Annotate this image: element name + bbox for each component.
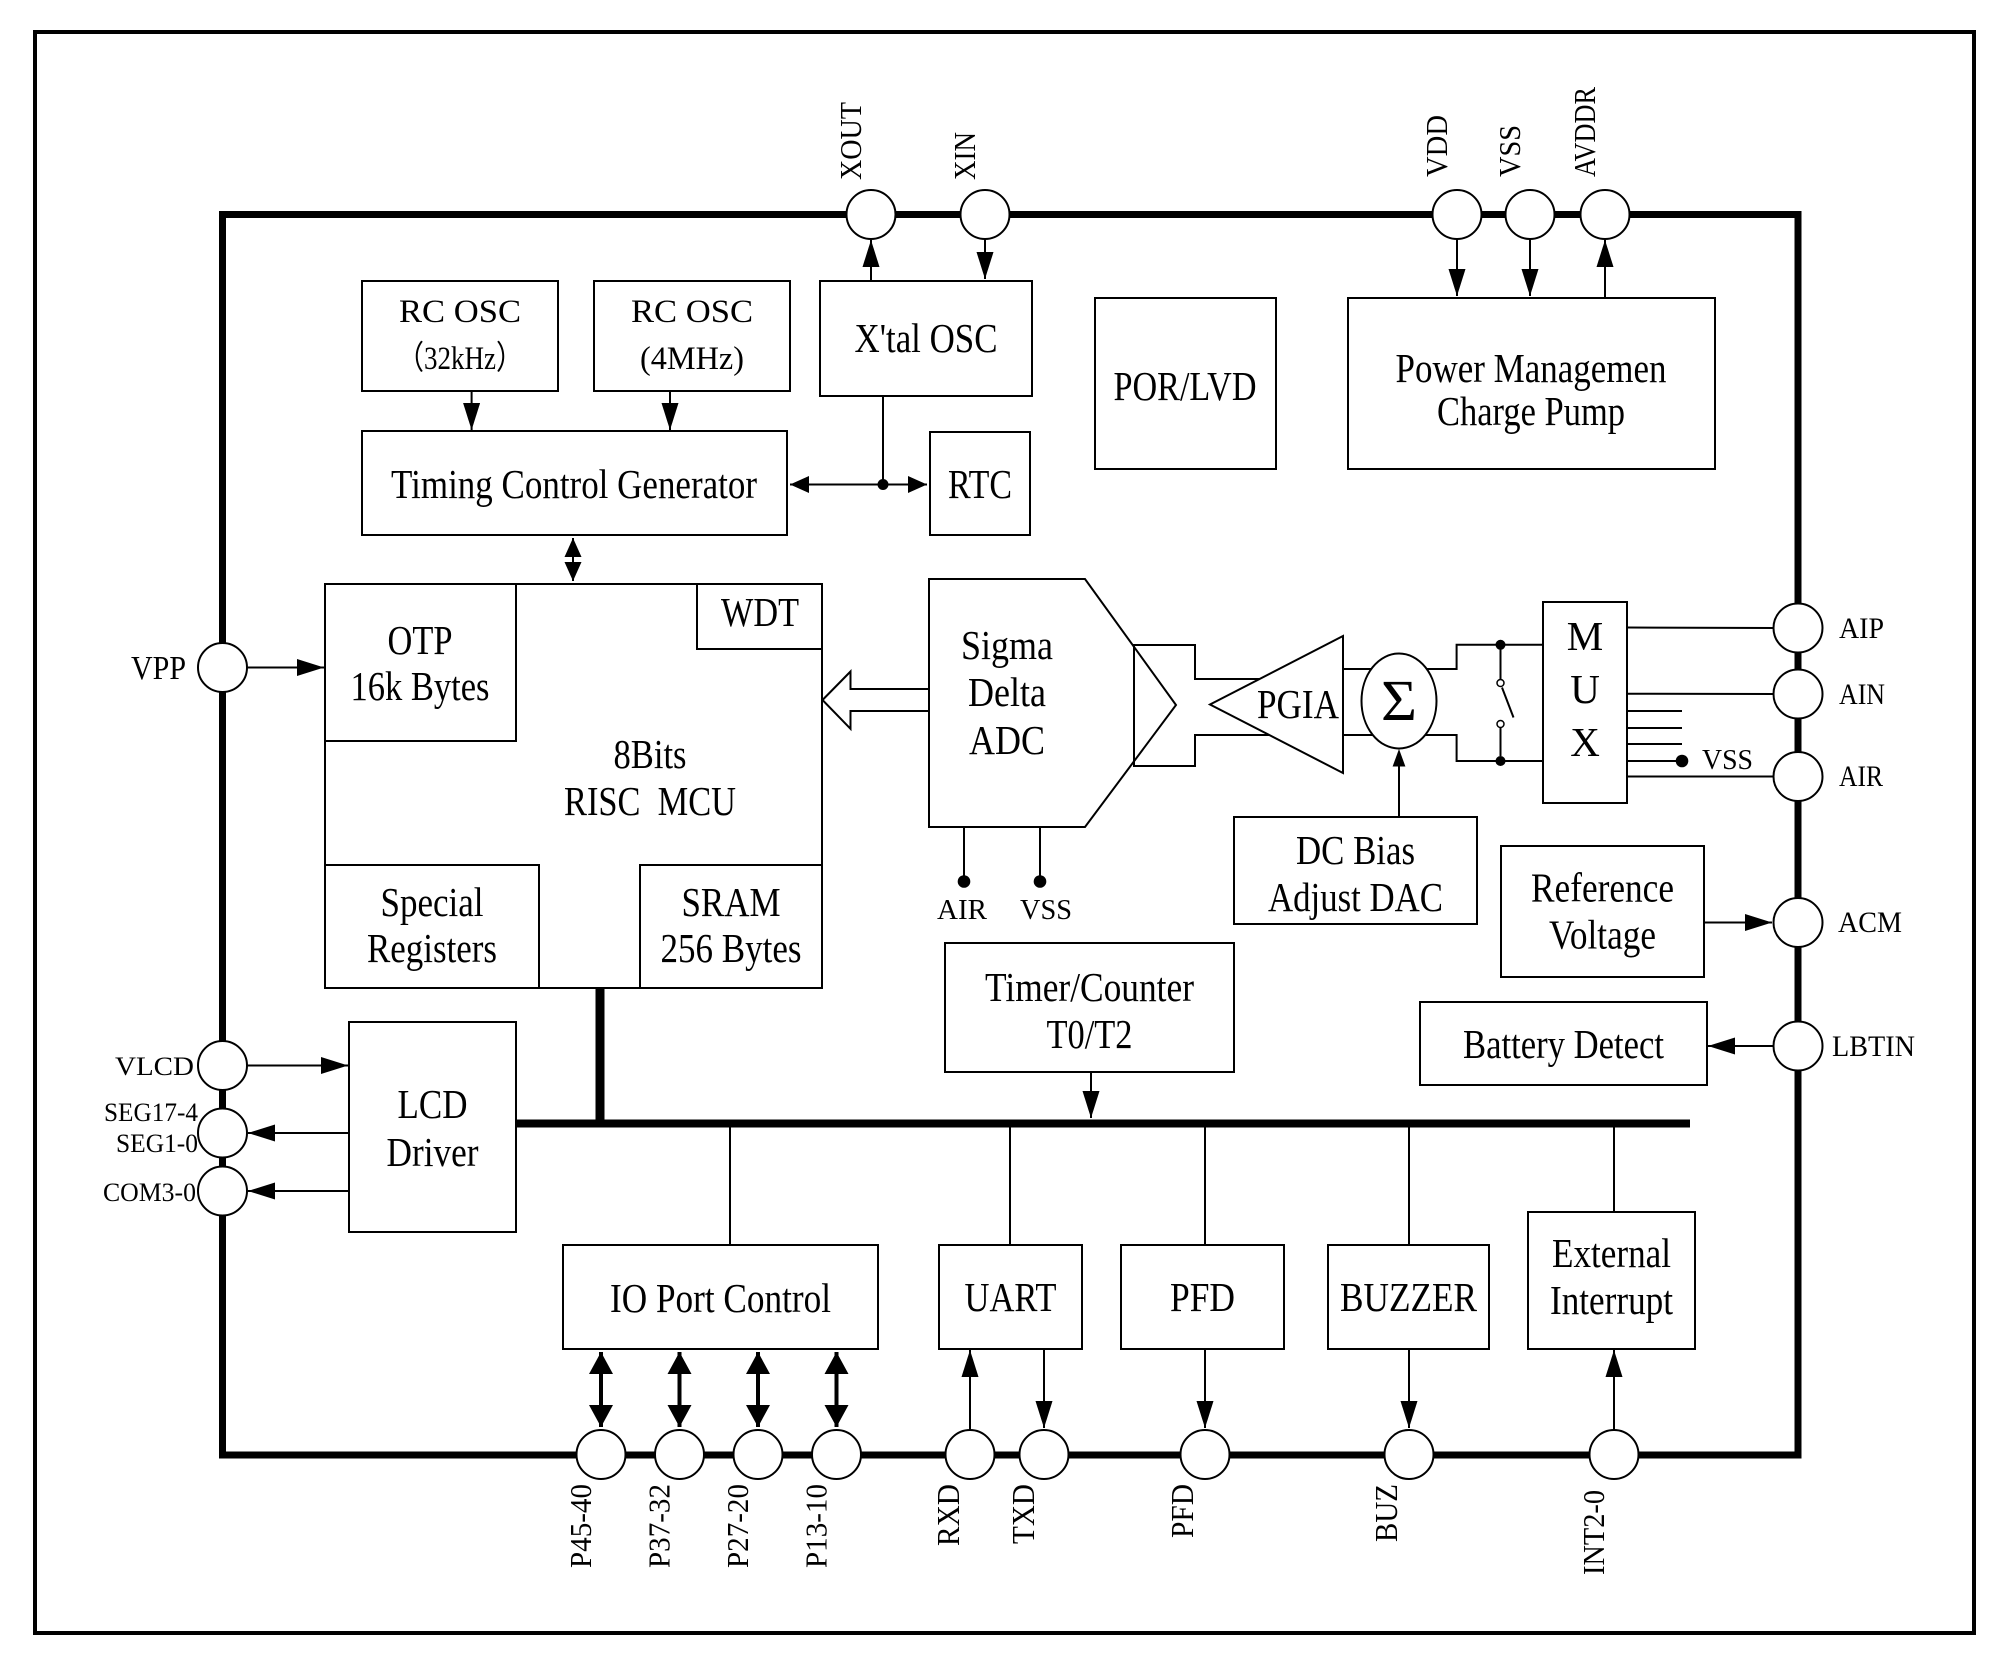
svg-text:256 Bytes: 256 Bytes xyxy=(661,925,802,971)
svg-text:OTP: OTP xyxy=(388,617,453,663)
svg-text:Power Managemen: Power Managemen xyxy=(1396,345,1667,391)
svg-text:Timing Control Generator: Timing Control Generator xyxy=(391,461,757,507)
svg-text:T0/T2: T0/T2 xyxy=(1047,1011,1133,1057)
svg-text:X: X xyxy=(1570,719,1600,765)
svg-text:SRAM: SRAM xyxy=(682,879,781,925)
svg-text:External: External xyxy=(1552,1230,1671,1276)
svg-text:Special: Special xyxy=(381,879,484,925)
svg-text:AIR: AIR xyxy=(937,894,988,926)
svg-text:Delta: Delta xyxy=(968,669,1046,715)
svg-text:（32kHz）: （32kHz） xyxy=(397,341,523,377)
svg-text:RC OSC: RC OSC xyxy=(631,294,753,330)
svg-text:WDT: WDT xyxy=(721,589,799,635)
svg-text:Σ: Σ xyxy=(1381,668,1417,733)
svg-text:Adjust DAC: Adjust DAC xyxy=(1268,874,1443,920)
svg-text:VSS: VSS xyxy=(1492,125,1527,177)
svg-text:X'tal OSC: X'tal OSC xyxy=(855,315,998,361)
svg-text:Charge Pump: Charge Pump xyxy=(1437,388,1625,434)
svg-text:Driver: Driver xyxy=(387,1129,479,1175)
svg-text:16k Bytes: 16k Bytes xyxy=(351,663,490,709)
svg-text:8Bits: 8Bits xyxy=(614,731,687,777)
svg-text:INT2-0: INT2-0 xyxy=(1576,1490,1611,1575)
svg-text:Battery Detect: Battery Detect xyxy=(1463,1021,1665,1067)
svg-text:RTC: RTC xyxy=(948,461,1012,507)
svg-text:RISC MCU: RISC MCU xyxy=(564,778,736,824)
svg-text:TXD: TXD xyxy=(1005,1484,1041,1544)
svg-text:AIR: AIR xyxy=(1839,760,1883,793)
svg-text:P45-40: P45-40 xyxy=(563,1484,598,1568)
svg-text:Reference: Reference xyxy=(1531,865,1674,911)
svg-text:U: U xyxy=(1570,666,1600,712)
svg-text:RXD: RXD xyxy=(930,1484,966,1546)
svg-text:P27-20: P27-20 xyxy=(720,1484,755,1568)
svg-text:SEG1-0: SEG1-0 xyxy=(116,1129,198,1158)
svg-text:AIN: AIN xyxy=(1839,678,1885,711)
svg-text:LBTIN: LBTIN xyxy=(1832,1030,1915,1063)
svg-text:SEG17-4: SEG17-4 xyxy=(104,1098,198,1127)
svg-text:VSS: VSS xyxy=(1020,894,1072,926)
svg-text:VDD: VDD xyxy=(1419,115,1454,177)
svg-text:PGIA: PGIA xyxy=(1257,681,1339,727)
svg-text:Sigma: Sigma xyxy=(961,622,1053,668)
svg-text:Registers: Registers xyxy=(367,925,497,971)
svg-text:P37-32: P37-32 xyxy=(642,1484,677,1568)
svg-text:LCD: LCD xyxy=(398,1081,468,1127)
svg-text:VSS: VSS xyxy=(1702,744,1753,776)
svg-text:ACM: ACM xyxy=(1838,906,1902,939)
svg-text:XIN: XIN xyxy=(947,132,982,180)
svg-text:AIP: AIP xyxy=(1839,612,1884,645)
svg-text:BUZZER: BUZZER xyxy=(1340,1274,1478,1320)
svg-text:PFD: PFD xyxy=(1170,1274,1235,1320)
svg-text:VPP: VPP xyxy=(131,650,186,687)
svg-text:PFD: PFD xyxy=(1164,1484,1200,1538)
svg-text:ADC: ADC xyxy=(969,717,1045,763)
svg-text:(4MHz): (4MHz) xyxy=(640,341,744,377)
svg-text:IO Port Control: IO Port Control xyxy=(610,1275,831,1321)
svg-text:UART: UART xyxy=(965,1274,1057,1320)
svg-text:BUZ: BUZ xyxy=(1368,1484,1404,1542)
svg-text:VLCD: VLCD xyxy=(115,1052,194,1081)
svg-text:AVDDR: AVDDR xyxy=(1567,87,1602,177)
svg-text:M: M xyxy=(1567,613,1603,659)
svg-text:DC Bias: DC Bias xyxy=(1296,827,1415,873)
svg-text:P13-10: P13-10 xyxy=(799,1484,834,1568)
svg-text:RC OSC: RC OSC xyxy=(399,294,521,330)
svg-text:Interrupt: Interrupt xyxy=(1550,1277,1674,1323)
svg-text:POR/LVD: POR/LVD xyxy=(1114,363,1257,409)
svg-text:Timer/Counter: Timer/Counter xyxy=(985,964,1194,1010)
svg-text:COM3-0: COM3-0 xyxy=(103,1178,196,1207)
svg-text:Voltage: Voltage xyxy=(1549,912,1656,958)
svg-text:XOUT: XOUT xyxy=(833,102,868,180)
